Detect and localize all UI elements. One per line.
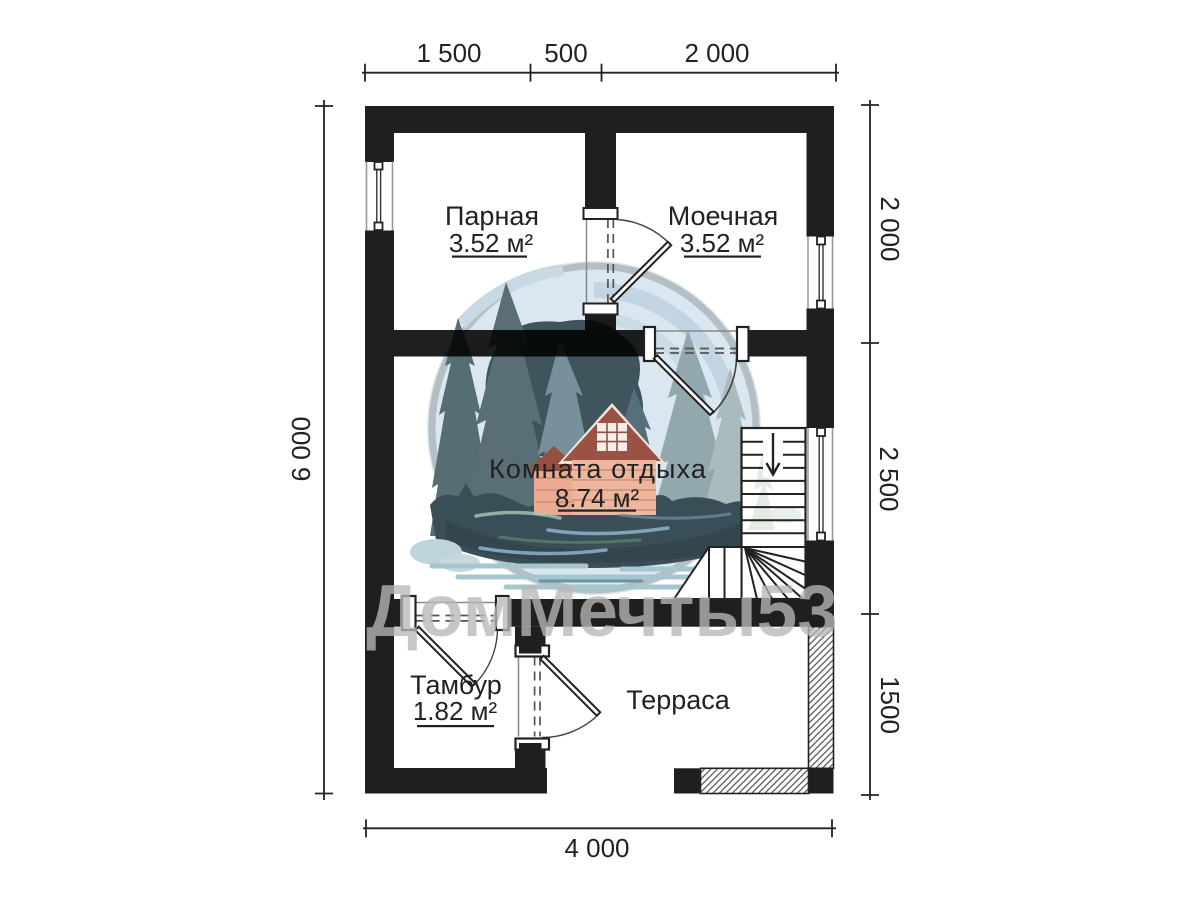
svg-text:2 500: 2 500 [874, 446, 904, 511]
svg-text:4 000: 4 000 [564, 833, 629, 863]
svg-text:2 000: 2 000 [684, 38, 749, 68]
svg-text:500: 500 [544, 38, 587, 68]
svg-text:Парная: Парная [445, 201, 539, 231]
svg-text:Комната отдыха: Комната отдыха [489, 454, 707, 484]
svg-text:2 000: 2 000 [875, 196, 905, 261]
svg-text:ДомМечты53: ДомМечты53 [366, 571, 838, 652]
svg-text:3.52 м²: 3.52 м² [680, 228, 765, 258]
svg-text:6 000: 6 000 [286, 416, 316, 481]
svg-text:Терраса: Терраса [626, 685, 731, 715]
svg-text:1 500: 1 500 [416, 38, 481, 68]
svg-text:1.82 м²: 1.82 м² [413, 696, 498, 726]
svg-text:8.74 м²: 8.74 м² [555, 483, 640, 513]
svg-text:1500: 1500 [875, 676, 905, 734]
svg-text:3.52 м²: 3.52 м² [449, 228, 534, 258]
svg-text:Моечная: Моечная [668, 201, 779, 231]
